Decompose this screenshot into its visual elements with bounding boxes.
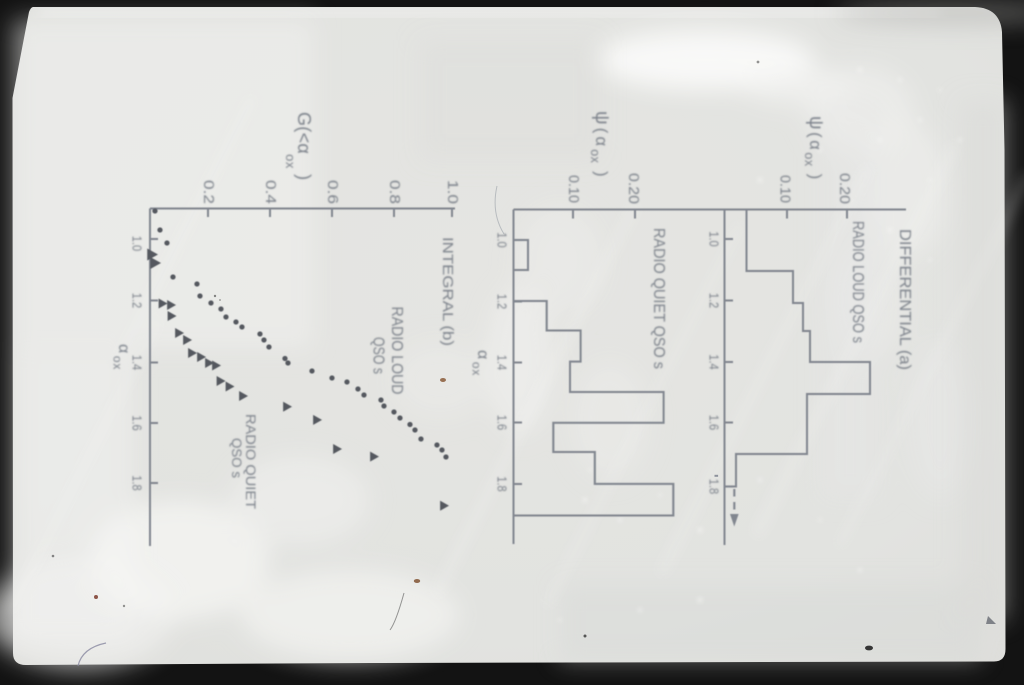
- svg-text:0.8: 0.8: [386, 180, 402, 204]
- svg-text:1.2: 1.2: [707, 293, 722, 309]
- svg-text:0.20: 0.20: [836, 173, 852, 204]
- svg-text:0.4: 0.4: [262, 180, 278, 204]
- svg-text:RADIO LOUD QSO s: RADIO LOUD QSO s: [849, 221, 866, 343]
- svg-text:1.6: 1.6: [130, 415, 145, 431]
- svg-text:QSO s: QSO s: [370, 337, 387, 374]
- svg-text:1.0: 1.0: [130, 236, 145, 252]
- svg-text:1.6: 1.6: [495, 415, 510, 431]
- svg-text:1.2: 1.2: [130, 293, 145, 309]
- svg-text:0.6: 0.6: [324, 180, 340, 204]
- svg-text:1.0: 1.0: [444, 180, 460, 204]
- svg-text:1.8: 1.8: [495, 476, 510, 492]
- svg-text:RADIO QUIET QSO s: RADIO QUIET QSO s: [650, 228, 667, 369]
- svg-text:1.4: 1.4: [707, 354, 722, 370]
- svg-text:1.4: 1.4: [130, 355, 145, 371]
- svg-text:RADIO LOUD: RADIO LOUD: [388, 307, 405, 395]
- svg-text:INTEGRAL (b): INTEGRAL (b): [439, 237, 456, 346]
- svg-text:0.20: 0.20: [625, 173, 641, 204]
- svg-text:DIFFERENTIAL (a): DIFFERENTIAL (a): [896, 229, 913, 370]
- svg-text:1.6: 1.6: [707, 415, 722, 431]
- svg-text:1.2: 1.2: [495, 294, 510, 310]
- svg-text:1.4: 1.4: [495, 355, 510, 371]
- svg-text:0.2: 0.2: [200, 180, 216, 204]
- svg-text:1.8: 1.8: [707, 479, 722, 495]
- svg-text:0.10: 0.10: [565, 175, 581, 203]
- svg-text:1.0: 1.0: [495, 232, 510, 248]
- svg-text:RADIO QUIET: RADIO QUIET: [243, 414, 258, 509]
- svg-text:1.0: 1.0: [707, 231, 722, 247]
- svg-text:QSO s: QSO s: [229, 438, 244, 478]
- svg-text:0.10: 0.10: [777, 175, 793, 203]
- svg-text:1.8: 1.8: [130, 475, 145, 491]
